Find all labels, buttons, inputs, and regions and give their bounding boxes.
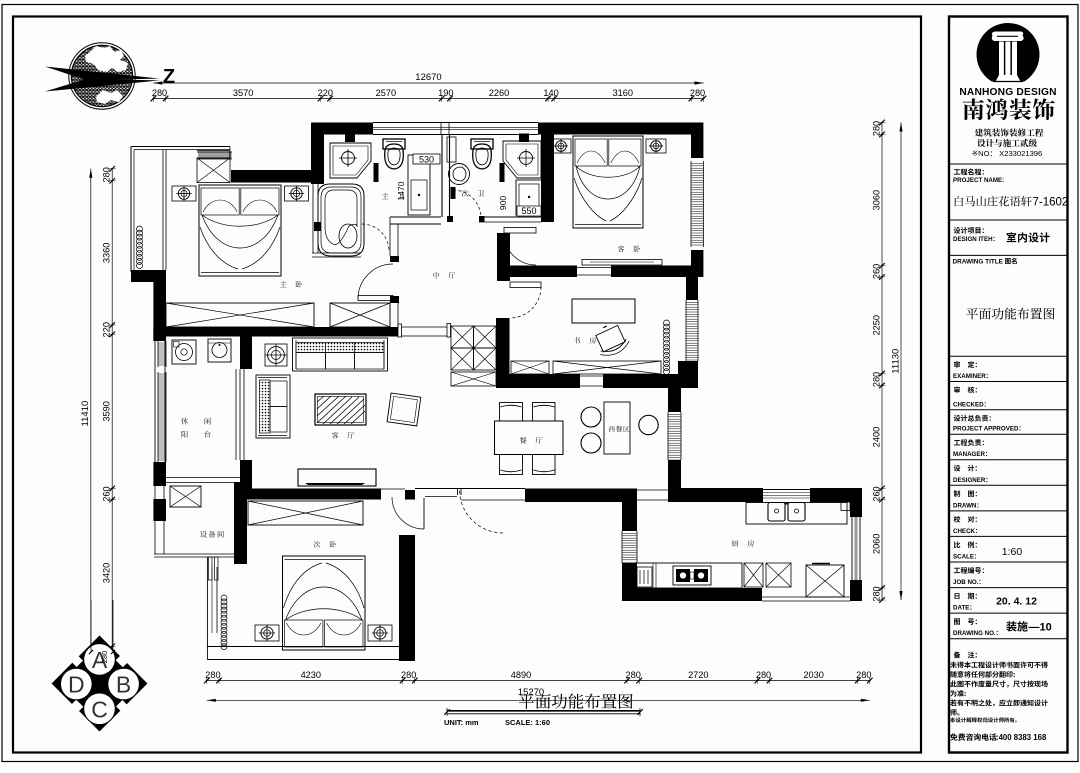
svg-text:280: 280 [872, 586, 882, 601]
svg-text:3570: 3570 [233, 88, 253, 98]
svg-text:2400: 2400 [872, 427, 882, 447]
svg-text:280: 280 [626, 670, 641, 680]
svg-text:280: 280 [856, 670, 871, 680]
svg-text:280: 280 [102, 167, 112, 182]
svg-text:Z: Z [163, 66, 175, 88]
svg-text:3590: 3590 [102, 401, 112, 421]
svg-text:DESIGN ITEH：: DESIGN ITEH： [953, 236, 999, 243]
svg-text::400 8383 168: :400 8383 168 [996, 733, 1047, 742]
svg-text:260: 260 [872, 486, 882, 501]
svg-text:2250: 2250 [872, 315, 882, 335]
svg-text:1:60: 1:60 [1002, 546, 1023, 558]
svg-text:220: 220 [102, 322, 112, 337]
svg-text:D: D [68, 672, 85, 698]
svg-text:CHECKED：: CHECKED： [953, 401, 990, 408]
svg-text:12670: 12670 [415, 72, 441, 83]
svg-text:3420: 3420 [102, 563, 112, 583]
svg-text:SCALE：: SCALE： [953, 554, 980, 561]
svg-text:3060: 3060 [872, 190, 882, 210]
svg-text:20. 4. 12: 20. 4. 12 [996, 596, 1037, 608]
svg-text:※NO： X233021396: ※NO： X233021396 [972, 149, 1043, 158]
svg-text:DESIGNER：: DESIGNER： [953, 477, 992, 484]
svg-text:280: 280 [100, 651, 109, 664]
svg-text:B: B [116, 672, 131, 698]
svg-text:11410: 11410 [80, 401, 91, 427]
svg-text:CHECK：: CHECK： [953, 528, 981, 535]
svg-text:280: 280 [756, 670, 771, 680]
svg-text:UNIT: mm: UNIT: mm [444, 718, 479, 727]
svg-text:4230: 4230 [301, 670, 321, 680]
svg-text:280: 280 [690, 88, 705, 98]
svg-text:SCALE: 1:60: SCALE: 1:60 [505, 718, 550, 727]
svg-text:15270: 15270 [518, 687, 544, 698]
svg-text:280: 280 [872, 121, 882, 136]
svg-text:2060: 2060 [872, 534, 882, 554]
svg-text:—10: —10 [1029, 622, 1052, 634]
svg-text:EXAMINER：: EXAMINER： [953, 373, 992, 380]
svg-text:2260: 2260 [489, 88, 509, 98]
svg-text:280: 280 [401, 670, 416, 680]
svg-text:280: 280 [152, 88, 167, 98]
svg-text:1470: 1470 [396, 181, 406, 200]
svg-text:900: 900 [498, 196, 508, 210]
svg-text:530: 530 [419, 155, 434, 165]
svg-text:2720: 2720 [688, 670, 708, 680]
svg-text:2570: 2570 [376, 88, 396, 98]
svg-text:140: 140 [543, 88, 558, 98]
svg-text:MANAGER：: MANAGER： [953, 451, 991, 458]
svg-text:DRAWN：: DRAWN： [953, 502, 983, 509]
svg-text:PROJECT NAME:: PROJECT NAME: [953, 177, 1004, 184]
svg-text:280: 280 [872, 372, 882, 387]
svg-text:2030: 2030 [803, 670, 823, 680]
svg-text:260: 260 [872, 264, 882, 279]
svg-text:PROJECT APPROVED：: PROJECT APPROVED： [953, 426, 1025, 433]
svg-text:7-1602: 7-1602 [1033, 197, 1069, 209]
svg-text:DRAWING NO.：: DRAWING NO.： [953, 630, 1002, 637]
svg-text:3360: 3360 [102, 243, 112, 263]
svg-text:4890: 4890 [511, 670, 531, 680]
svg-text:C: C [91, 696, 108, 722]
svg-text:190: 190 [438, 88, 453, 98]
svg-text:DATE：: DATE： [953, 605, 976, 612]
svg-text:3160: 3160 [613, 88, 633, 98]
svg-text:260: 260 [102, 486, 112, 501]
svg-text:280: 280 [205, 670, 220, 680]
svg-text:220: 220 [318, 88, 333, 98]
svg-text:11130: 11130 [891, 349, 902, 374]
svg-text:DRAWING TITLE: DRAWING TITLE [953, 259, 1004, 266]
svg-text:550: 550 [521, 206, 536, 216]
svg-text:NANHONG DESIGN: NANHONG DESIGN [959, 87, 1056, 98]
svg-text:JOB NO.：: JOB NO.： [953, 579, 985, 586]
